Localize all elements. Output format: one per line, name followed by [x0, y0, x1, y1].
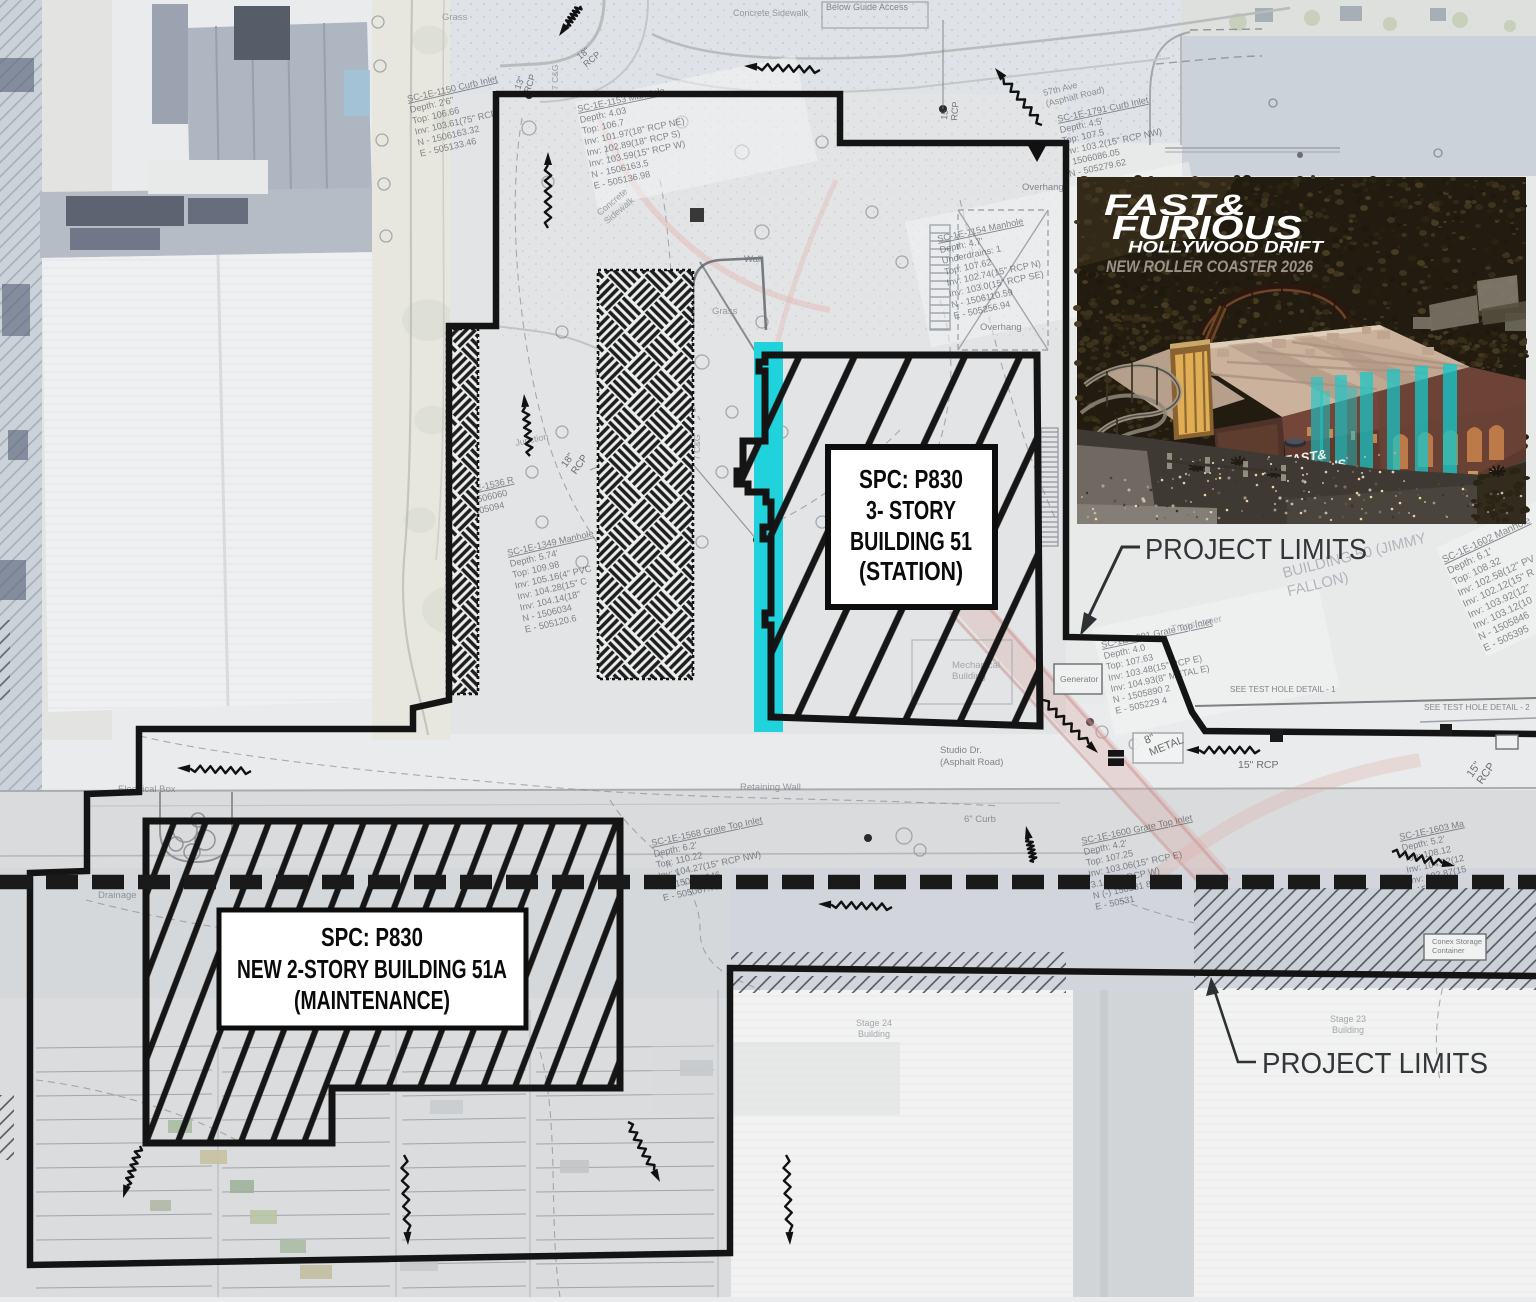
svg-text:SEE TEST HOLE DETAIL - 2: SEE TEST HOLE DETAIL - 2	[1424, 703, 1530, 712]
svg-text:Building: Building	[858, 1029, 890, 1039]
svg-text:Drainage: Drainage	[98, 890, 137, 901]
svg-text:(Asphalt Road): (Asphalt Road)	[940, 757, 1003, 768]
svg-text:Wall: Wall	[744, 254, 762, 265]
svg-text:BUILDING 51: BUILDING 51	[850, 526, 972, 556]
svg-text:Overhang: Overhang	[1022, 182, 1064, 193]
svg-text:HOLLYWOOD DRIFT: HOLLYWOOD DRIFT	[1128, 239, 1325, 257]
svg-text:Concrete Sidewalk: Concrete Sidewalk	[733, 8, 809, 18]
svg-text:Conex Storage: Conex Storage	[1432, 937, 1482, 946]
svg-text:RCP: RCP	[949, 101, 961, 121]
svg-text:SEE TEST HOLE DETAIL - 1: SEE TEST HOLE DETAIL - 1	[1230, 685, 1336, 694]
svg-text:Generator: Generator	[1060, 674, 1098, 684]
svg-text:Stage 24: Stage 24	[856, 1018, 892, 1028]
svg-text:PROJECT LIMITS: PROJECT LIMITS	[1145, 534, 1367, 566]
svg-text:Container: Container	[1432, 946, 1465, 955]
svg-text:NEW 2-STORY BUILDING 51A: NEW 2-STORY BUILDING 51A	[237, 954, 507, 984]
svg-text:Studio Dr.: Studio Dr.	[940, 745, 982, 756]
svg-text:3- STORY: 3- STORY	[866, 495, 956, 525]
svg-text:SPC: P830: SPC: P830	[859, 464, 963, 494]
svg-text:(MAINTENANCE): (MAINTENANCE)	[294, 985, 450, 1015]
svg-text:PROJECT LIMITS: PROJECT LIMITS	[1262, 1048, 1488, 1080]
svg-text:Building: Building	[1332, 1025, 1364, 1035]
svg-text:7 C&G: 7 C&G	[550, 64, 560, 90]
svg-text:(STATION): (STATION)	[859, 556, 963, 586]
svg-text:Grass: Grass	[712, 306, 738, 317]
svg-text:Retaining Wall: Retaining Wall	[740, 782, 801, 793]
svg-text:Below Guide Access: Below Guide Access	[826, 2, 909, 12]
svg-text:NEW ROLLER COASTER 2026: NEW ROLLER COASTER 2026	[1106, 258, 1314, 276]
svg-text:Grass: Grass	[442, 12, 468, 23]
svg-text:Stage 23: Stage 23	[1330, 1014, 1366, 1024]
svg-text:6" Curb: 6" Curb	[964, 814, 996, 825]
svg-text:Overhang: Overhang	[980, 322, 1022, 333]
svg-text:SPC: P830: SPC: P830	[321, 922, 423, 952]
svg-text:15" RCP: 15" RCP	[1238, 759, 1279, 771]
